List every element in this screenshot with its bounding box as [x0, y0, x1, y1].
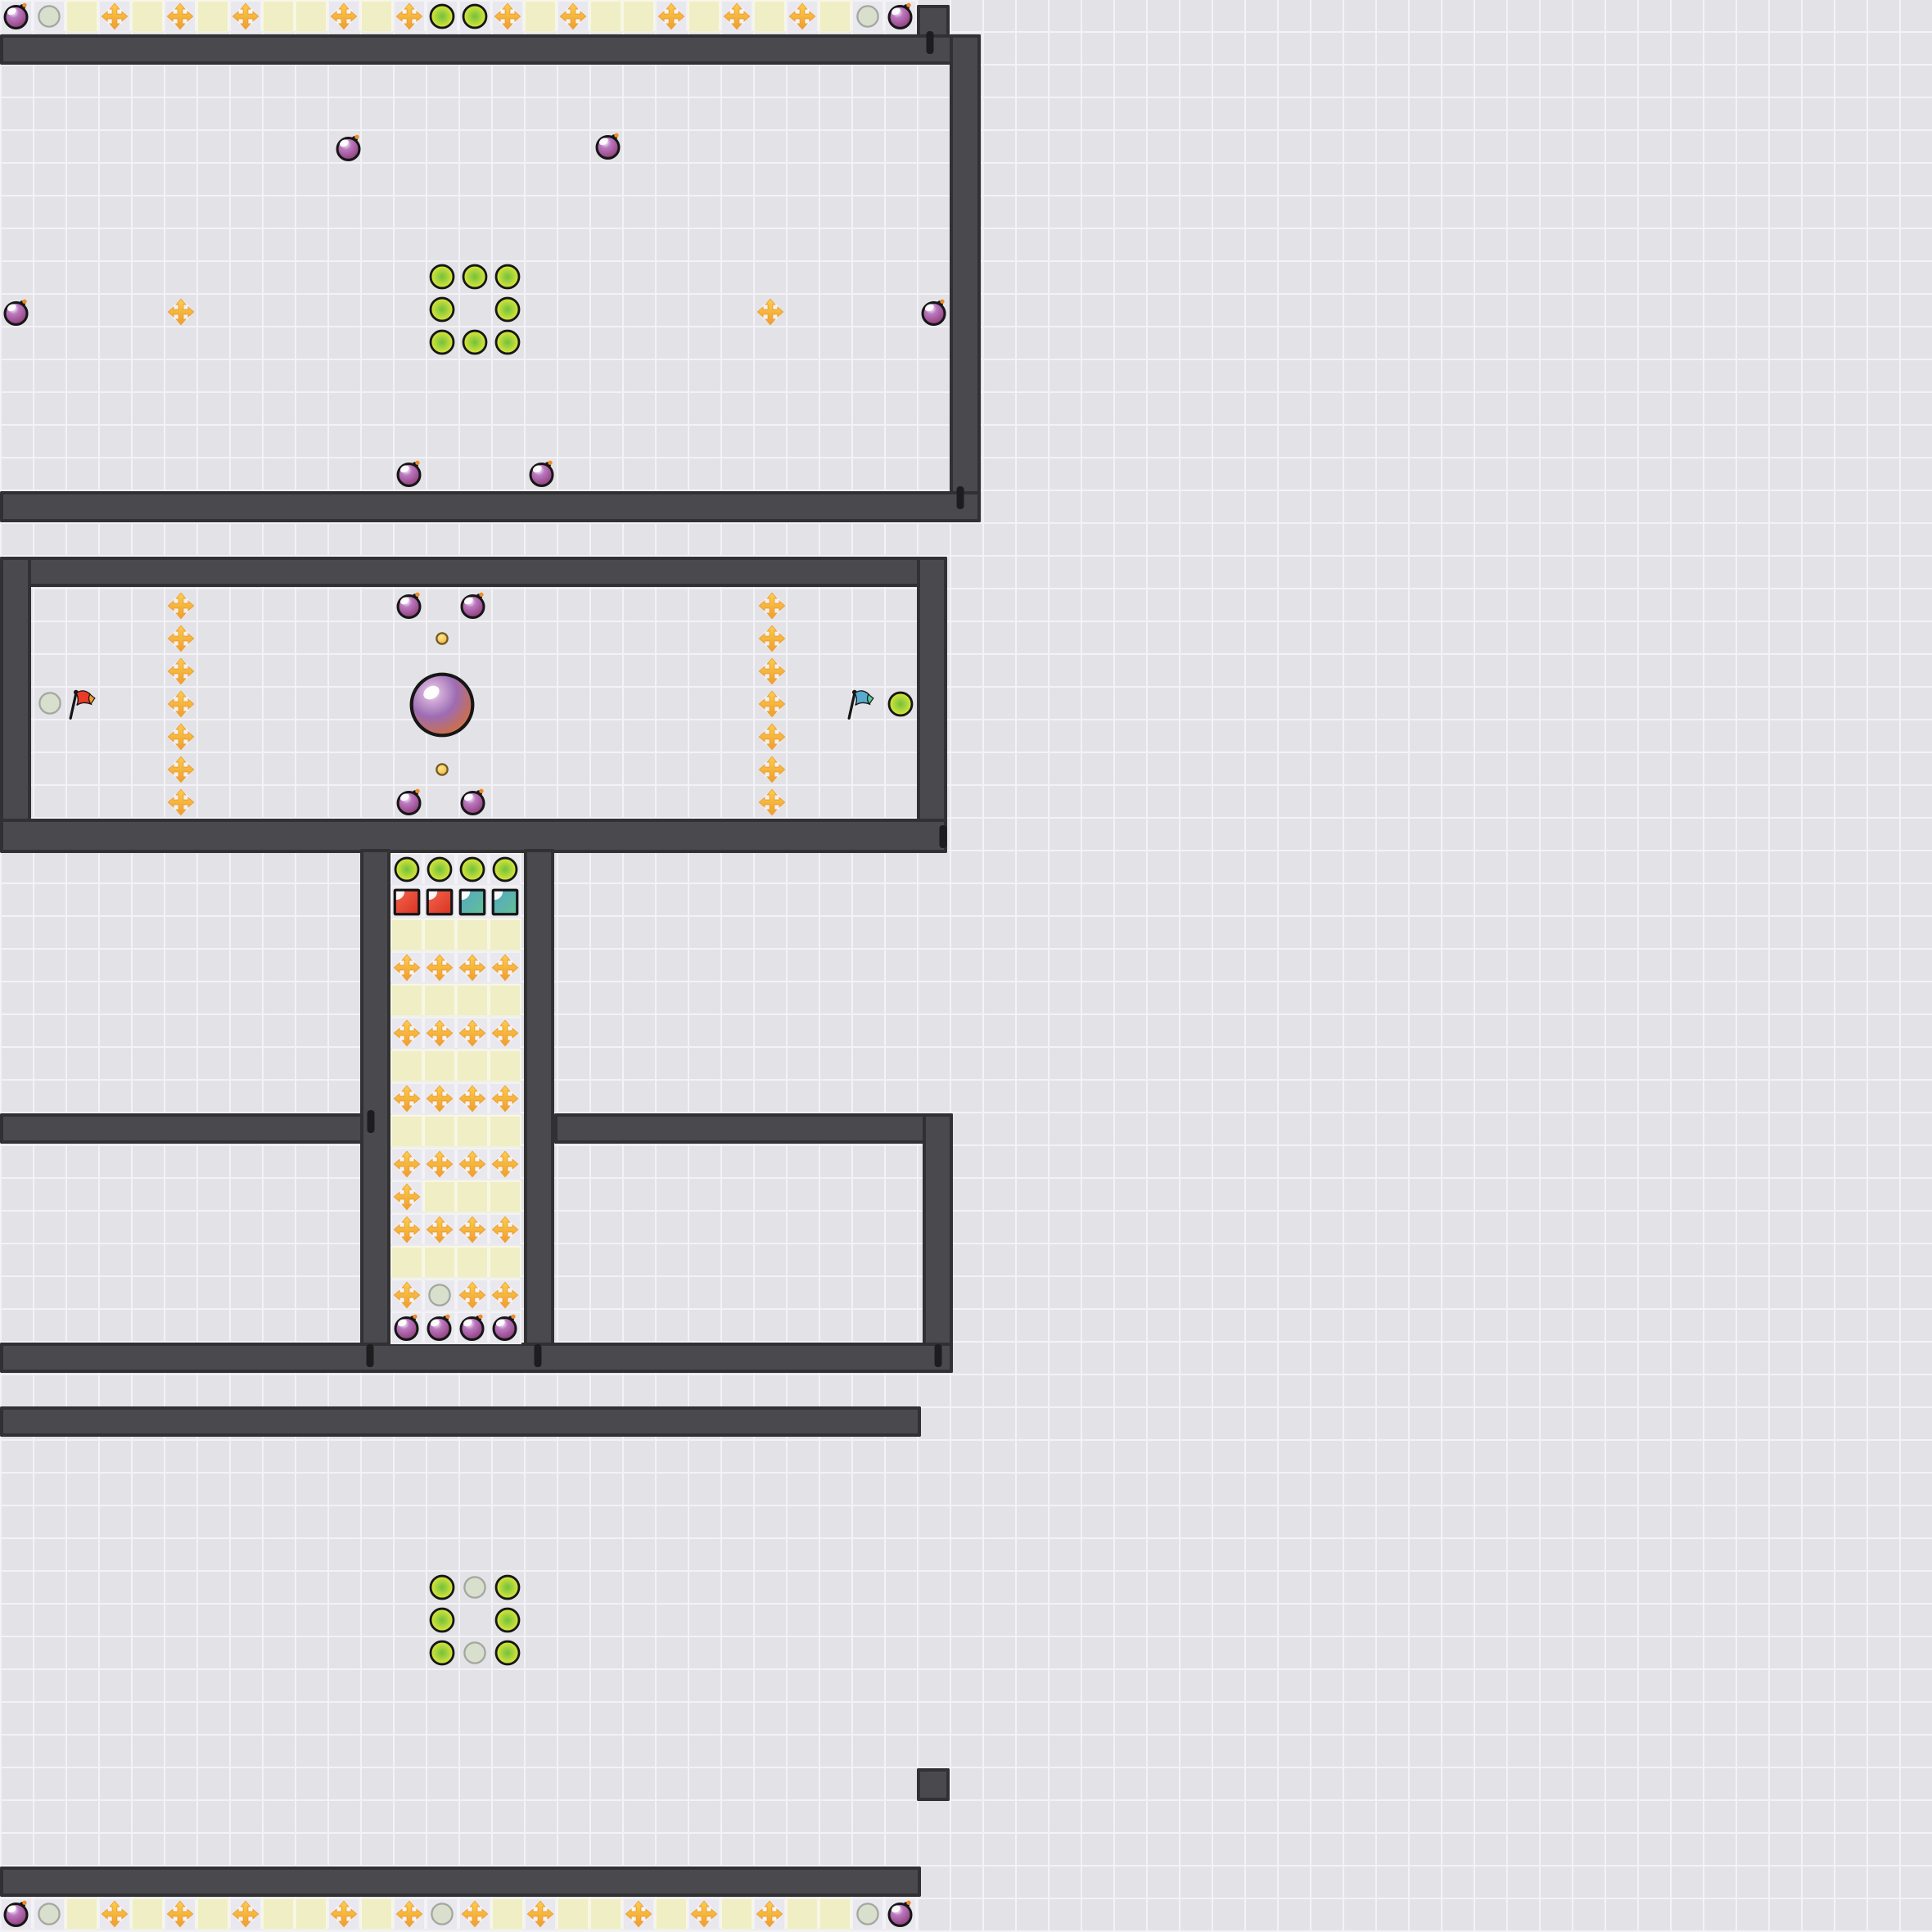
gold-dot[interactable] [435, 762, 450, 778]
floor-tile-yellow[interactable] [688, 0, 720, 33]
wall-segment [524, 849, 554, 1373]
floor-tile-yellow[interactable] [423, 1180, 456, 1213]
floor-tile-yellow[interactable] [655, 1898, 688, 1930]
spawn-circle[interactable] [36, 1901, 62, 1927]
move-arrow-icon[interactable] [624, 1899, 653, 1929]
floor-tile-yellow[interactable] [456, 1180, 489, 1213]
floor-tile-yellow[interactable] [360, 1898, 393, 1930]
floor-tile-yellow[interactable] [390, 1115, 423, 1148]
floor-tile-yellow[interactable] [753, 0, 786, 33]
floor-tile-yellow[interactable] [819, 0, 851, 33]
floor-tile-yellow[interactable] [489, 1050, 521, 1082]
move-arrow-icon[interactable] [166, 689, 196, 719]
move-arrow-icon[interactable] [458, 953, 487, 982]
wall-segment [0, 557, 31, 851]
bomb-orb[interactable] [526, 458, 557, 490]
wall-segment [0, 1406, 921, 1437]
spawn-circle[interactable] [462, 1640, 488, 1666]
floor-tile-yellow[interactable] [456, 919, 489, 951]
floor-tile-yellow[interactable] [295, 1898, 327, 1930]
green-orb[interactable] [428, 2, 456, 30]
move-arrow-icon[interactable] [526, 1899, 555, 1929]
move-arrow-icon[interactable] [166, 624, 196, 653]
floor-tile-yellow[interactable] [456, 984, 489, 1017]
floor-tile-yellow[interactable] [196, 1898, 229, 1930]
spawn-circle[interactable] [855, 1901, 881, 1927]
move-arrow-icon[interactable] [166, 755, 196, 784]
green-orb[interactable] [491, 855, 519, 883]
green-orb[interactable] [393, 855, 421, 883]
move-arrow-icon[interactable] [757, 722, 787, 752]
door-marker [368, 1110, 375, 1133]
move-arrow-icon[interactable] [493, 2, 522, 31]
move-arrow-icon[interactable] [231, 2, 260, 31]
move-arrow-icon[interactable] [329, 1899, 359, 1929]
floor-tile-yellow[interactable] [456, 1050, 489, 1082]
bomb-orb[interactable] [490, 1312, 521, 1343]
floor-tile-yellow[interactable] [390, 1050, 423, 1082]
bomb-orb[interactable] [457, 1312, 488, 1343]
green-orb[interactable] [428, 1639, 456, 1667]
move-arrow-icon[interactable] [657, 2, 686, 31]
green-orb[interactable] [428, 263, 456, 291]
floor-tile-yellow[interactable] [423, 1050, 456, 1082]
spawn-circle[interactable] [429, 1901, 455, 1927]
green-orb[interactable] [494, 1639, 521, 1667]
move-arrow-icon[interactable] [392, 1084, 422, 1113]
move-arrow-icon[interactable] [757, 788, 787, 817]
door-marker [535, 1344, 542, 1367]
green-orb[interactable] [494, 296, 521, 323]
wall-segment [923, 1113, 953, 1373]
move-arrow-icon[interactable] [458, 1018, 487, 1048]
move-arrow-icon[interactable] [165, 2, 195, 31]
floor-tile-yellow[interactable] [489, 1246, 521, 1279]
floor-tile-yellow[interactable] [423, 984, 456, 1017]
wall-segment [0, 1113, 363, 1144]
move-arrow-icon[interactable] [425, 1018, 454, 1048]
green-orb[interactable] [428, 296, 456, 323]
green-orb[interactable] [494, 1606, 521, 1634]
spawn-circle[interactable] [37, 690, 63, 716]
wall-segment [360, 849, 390, 1373]
floor-tile-yellow[interactable] [622, 0, 655, 33]
move-arrow-icon[interactable] [788, 2, 817, 31]
move-arrow-icon[interactable] [395, 2, 424, 31]
move-arrow-icon[interactable] [425, 1215, 454, 1244]
floor-tile-yellow[interactable] [196, 0, 229, 33]
move-arrow-icon[interactable] [392, 1280, 422, 1310]
teal-flag-icon[interactable] [842, 686, 880, 724]
move-arrow-icon[interactable] [757, 657, 787, 686]
door-marker [927, 31, 934, 54]
door-marker [935, 1344, 942, 1367]
floor-tile-yellow[interactable] [360, 0, 393, 33]
green-orb[interactable] [428, 1573, 456, 1601]
floor-tile-yellow[interactable] [489, 919, 521, 951]
floor-tile-yellow[interactable] [262, 0, 295, 33]
move-arrow-icon[interactable] [490, 1280, 520, 1310]
floor-tile-yellow[interactable] [390, 984, 423, 1017]
floor-tile-yellow[interactable] [489, 1115, 521, 1148]
wall-segment [917, 557, 947, 851]
move-arrow-icon[interactable] [392, 1149, 422, 1179]
move-arrow-icon[interactable] [458, 1280, 487, 1310]
wall-segment [0, 34, 981, 65]
bomb-orb[interactable] [458, 787, 489, 818]
gold-dot[interactable] [435, 631, 450, 647]
move-arrow-icon[interactable] [166, 297, 196, 327]
boss-orb[interactable] [408, 670, 476, 739]
move-arrow-icon[interactable] [329, 2, 359, 31]
bomb-orb[interactable] [394, 458, 425, 490]
door-marker [940, 825, 947, 848]
green-orb[interactable] [494, 328, 521, 356]
floor-tile-yellow[interactable] [819, 1898, 851, 1930]
move-arrow-icon[interactable] [460, 1899, 490, 1929]
bomb-orb[interactable] [885, 1, 916, 32]
move-arrow-icon[interactable] [100, 1899, 129, 1929]
move-arrow-icon[interactable] [757, 591, 787, 621]
red-team-pad[interactable] [391, 887, 422, 918]
move-arrow-icon[interactable] [166, 591, 196, 621]
spawn-circle[interactable] [855, 3, 881, 29]
bomb-orb[interactable] [458, 590, 489, 621]
wall-segment [554, 1113, 953, 1144]
floor-tile-yellow[interactable] [489, 1180, 521, 1213]
floor-tile-yellow[interactable] [65, 1898, 98, 1930]
move-arrow-icon[interactable] [166, 788, 196, 817]
green-orb[interactable] [428, 1606, 456, 1634]
floor-tile-yellow[interactable] [456, 1246, 489, 1279]
bomb-orb[interactable] [1, 1898, 32, 1930]
move-arrow-icon[interactable] [490, 953, 520, 982]
move-arrow-icon[interactable] [757, 755, 787, 784]
green-orb[interactable] [461, 263, 489, 291]
move-arrow-icon[interactable] [490, 1084, 520, 1113]
move-arrow-icon[interactable] [490, 1215, 520, 1244]
floor-tile-yellow[interactable] [786, 1898, 819, 1930]
wall-segment [0, 1343, 953, 1373]
green-orb[interactable] [428, 328, 456, 356]
floor-tile-yellow[interactable] [295, 0, 327, 33]
move-arrow-icon[interactable] [490, 1149, 520, 1179]
floor-tile-yellow[interactable] [131, 1898, 164, 1930]
move-arrow-icon[interactable] [722, 2, 752, 31]
move-arrow-icon[interactable] [490, 1018, 520, 1048]
spawn-circle[interactable] [462, 1574, 488, 1600]
wall-segment [0, 819, 947, 853]
move-arrow-icon[interactable] [166, 722, 196, 752]
wall-segment [0, 491, 981, 522]
move-arrow-icon[interactable] [392, 1182, 422, 1212]
teal-team-pad[interactable] [490, 887, 521, 918]
bomb-orb[interactable] [333, 133, 364, 164]
spawn-circle[interactable] [36, 3, 62, 29]
game-map-canvas[interactable] [0, 0, 1932, 1932]
green-orb[interactable] [461, 328, 489, 356]
floor-tile-yellow[interactable] [423, 919, 456, 951]
move-arrow-icon[interactable] [392, 1215, 422, 1244]
move-arrow-icon[interactable] [231, 1899, 260, 1929]
move-arrow-icon[interactable] [757, 689, 787, 719]
red-flag-icon[interactable] [64, 686, 102, 724]
door-marker [367, 1344, 374, 1367]
wall-segment [950, 34, 981, 522]
move-arrow-icon[interactable] [756, 297, 785, 327]
floor-tile-yellow[interactable] [589, 1898, 622, 1930]
spawn-circle[interactable] [427, 1282, 453, 1308]
move-arrow-icon[interactable] [458, 1084, 487, 1113]
teal-team-pad[interactable] [457, 887, 488, 918]
bomb-orb[interactable] [593, 131, 624, 162]
floor-tile-yellow[interactable] [589, 0, 622, 33]
floor-tile-yellow[interactable] [491, 1898, 524, 1930]
floor-tile-yellow[interactable] [262, 1898, 295, 1930]
bomb-orb[interactable] [391, 1312, 422, 1343]
wall-segment [0, 557, 947, 587]
green-orb[interactable] [461, 2, 489, 30]
move-arrow-icon[interactable] [100, 2, 129, 31]
move-arrow-icon[interactable] [392, 1018, 422, 1048]
door-marker [957, 486, 964, 509]
move-arrow-icon[interactable] [558, 2, 588, 31]
wall-segment [0, 1867, 921, 1897]
green-orb[interactable] [494, 1573, 521, 1601]
bomb-orb[interactable] [424, 1312, 455, 1343]
red-team-pad[interactable] [424, 887, 455, 918]
wall-block [917, 1768, 950, 1801]
move-arrow-icon[interactable] [166, 657, 196, 686]
bomb-orb[interactable] [885, 1898, 916, 1930]
move-arrow-icon[interactable] [755, 1899, 784, 1929]
bomb-orb[interactable] [394, 787, 425, 818]
floor-tile-yellow[interactable] [557, 1898, 589, 1930]
move-arrow-icon[interactable] [689, 1899, 719, 1929]
move-arrow-icon[interactable] [757, 624, 787, 653]
floor-tile-yellow[interactable] [423, 1246, 456, 1279]
move-arrow-icon[interactable] [425, 1149, 454, 1179]
move-arrow-icon[interactable] [395, 1899, 424, 1929]
floor-tile-yellow[interactable] [131, 0, 164, 33]
floor-tile-yellow[interactable] [489, 984, 521, 1017]
floor-tile-yellow[interactable] [524, 0, 557, 33]
move-arrow-icon[interactable] [458, 1215, 487, 1244]
move-arrow-icon[interactable] [425, 953, 454, 982]
bomb-orb[interactable] [919, 297, 950, 328]
move-arrow-icon[interactable] [165, 1899, 195, 1929]
green-orb[interactable] [887, 690, 914, 718]
green-orb[interactable] [494, 263, 521, 291]
floor-tile-yellow[interactable] [390, 919, 423, 951]
bomb-orb[interactable] [1, 1, 32, 32]
move-arrow-icon[interactable] [392, 953, 422, 982]
floor-tile-yellow[interactable] [65, 0, 98, 33]
green-orb[interactable] [426, 855, 454, 883]
floor-tile-yellow[interactable] [423, 1115, 456, 1148]
move-arrow-icon[interactable] [425, 1084, 454, 1113]
green-orb[interactable] [458, 855, 486, 883]
floor-tile-yellow[interactable] [390, 1246, 423, 1279]
move-arrow-icon[interactable] [458, 1149, 487, 1179]
bomb-orb[interactable] [394, 590, 425, 621]
bomb-orb[interactable] [1, 297, 32, 328]
floor-tile-yellow[interactable] [456, 1115, 489, 1148]
floor-tile-yellow[interactable] [720, 1898, 753, 1930]
